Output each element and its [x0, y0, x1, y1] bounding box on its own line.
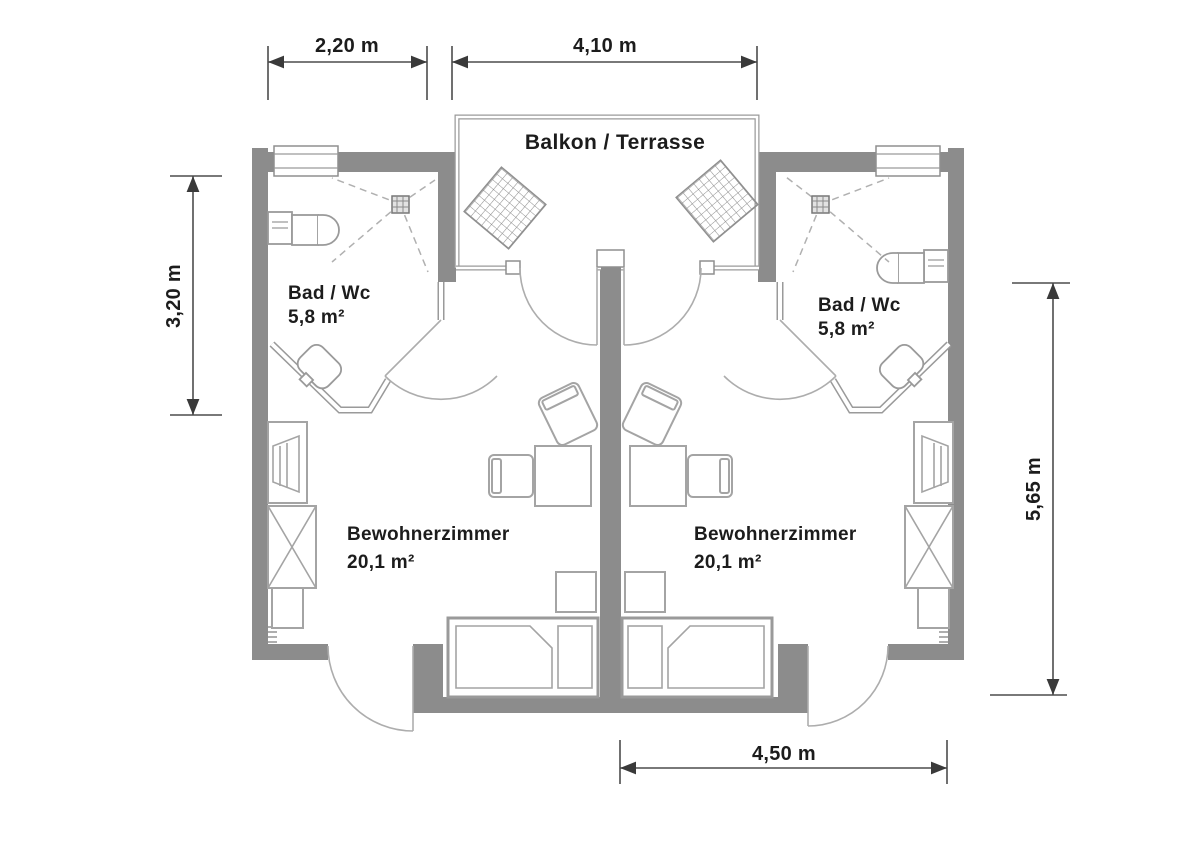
entry-door-left-swing [328, 646, 413, 731]
door-jamb-left [506, 261, 520, 274]
dim-label-bath-width: 2,20 m [315, 35, 379, 57]
shower-drain-right [812, 196, 829, 213]
floor-plan: 2,20 m 4,10 m 3,20 m 5,65 m 4,50 m Balko… [0, 0, 1200, 849]
room-right-name: Bewohnerzimmer [694, 524, 857, 545]
toilet-left [268, 212, 339, 245]
wall-left [252, 148, 268, 660]
wall-bath-balcony-right [758, 152, 776, 282]
shower-left [332, 178, 435, 272]
wardrobe-right [905, 506, 953, 588]
insulation-hatch-right [939, 627, 948, 642]
chair-left-tilted [537, 381, 599, 447]
entry-door-right-swing [808, 646, 888, 726]
wall-bottom-center [413, 697, 808, 713]
entry-door-right [808, 646, 888, 726]
wall-bath-balcony-left [438, 152, 456, 282]
bath-door-right-swing [724, 376, 836, 399]
balcony-label: Balkon / Terrasse [525, 131, 705, 154]
dim-bath-depth: 3,20 m [163, 176, 222, 415]
middle-wall-cap [597, 250, 624, 267]
room-right-label: Bewohnerzimmer 20,1 m² [694, 524, 857, 573]
tv-unit-right [914, 422, 953, 503]
balcony-mat-right [676, 160, 758, 242]
balcony-door-left [520, 268, 597, 345]
shower-drain-left [392, 196, 409, 213]
shower-right [786, 177, 889, 272]
dim-label-balcony-width: 4,10 m [573, 35, 637, 57]
dim-room-depth: 5,65 m [990, 283, 1070, 695]
dim-bath-width: 2,20 m [268, 35, 427, 100]
tv-unit-left [268, 422, 307, 503]
exterior-walls [252, 148, 964, 713]
bath-left-area: 5,8 m² [288, 307, 345, 328]
dim-label-room-depth: 5,65 m [1023, 457, 1045, 521]
chair-left [489, 455, 533, 497]
bath-door-left-leaf [385, 320, 441, 376]
bath-right-name: Bad / Wc [818, 295, 901, 316]
bath-door-left-swing [385, 376, 497, 399]
nightstand-left [556, 572, 596, 612]
chair-right-tilted [621, 381, 683, 447]
room-left-area: 20,1 m² [347, 552, 415, 573]
wall-middle [600, 266, 621, 713]
room-right-area: 20,1 m² [694, 552, 762, 573]
window-left [274, 146, 338, 176]
room-left-label: Bewohnerzimmer 20,1 m² [347, 524, 510, 573]
dim-room-width: 4,50 m [620, 740, 947, 784]
bath-left-label: Bad / Wc 5,8 m² [288, 283, 371, 328]
balcony-door-right-swing [624, 268, 701, 345]
dim-label-room-width: 4,50 m [752, 743, 816, 765]
wall-bottom-right [888, 644, 964, 660]
chair-right [688, 455, 732, 497]
balcony-door-left-swing [520, 268, 597, 345]
balcony-mat-left [464, 167, 546, 249]
dim-label-bath-depth: 3,20 m [163, 264, 185, 328]
room-left-name: Bewohnerzimmer [347, 524, 510, 545]
table-left [535, 446, 591, 506]
wardrobe-left [268, 506, 316, 588]
entry-door-left [328, 646, 413, 731]
bath-left-name: Bad / Wc [288, 283, 371, 304]
door-jamb-right [700, 261, 714, 274]
bath-right-label: Bad / Wc 5,8 m² [818, 295, 901, 340]
wall-bottom-left [252, 644, 328, 660]
window-right [876, 146, 940, 176]
bed-left [448, 618, 598, 697]
floor-plan-canvas: 2,20 m 4,10 m 3,20 m 5,65 m 4,50 m Balko… [0, 0, 1200, 849]
dresser-left [272, 588, 303, 628]
bed-right [622, 618, 772, 697]
toilet-right [877, 250, 948, 283]
dim-balcony-width: 4,10 m [452, 35, 757, 100]
balcony-door-right [624, 268, 701, 345]
nightstand-right [625, 572, 665, 612]
insulation-hatch-left [268, 627, 277, 642]
bath-door-left [385, 320, 497, 399]
dresser-right [918, 588, 949, 628]
bath-right-area: 5,8 m² [818, 319, 875, 340]
table-right [630, 446, 686, 506]
